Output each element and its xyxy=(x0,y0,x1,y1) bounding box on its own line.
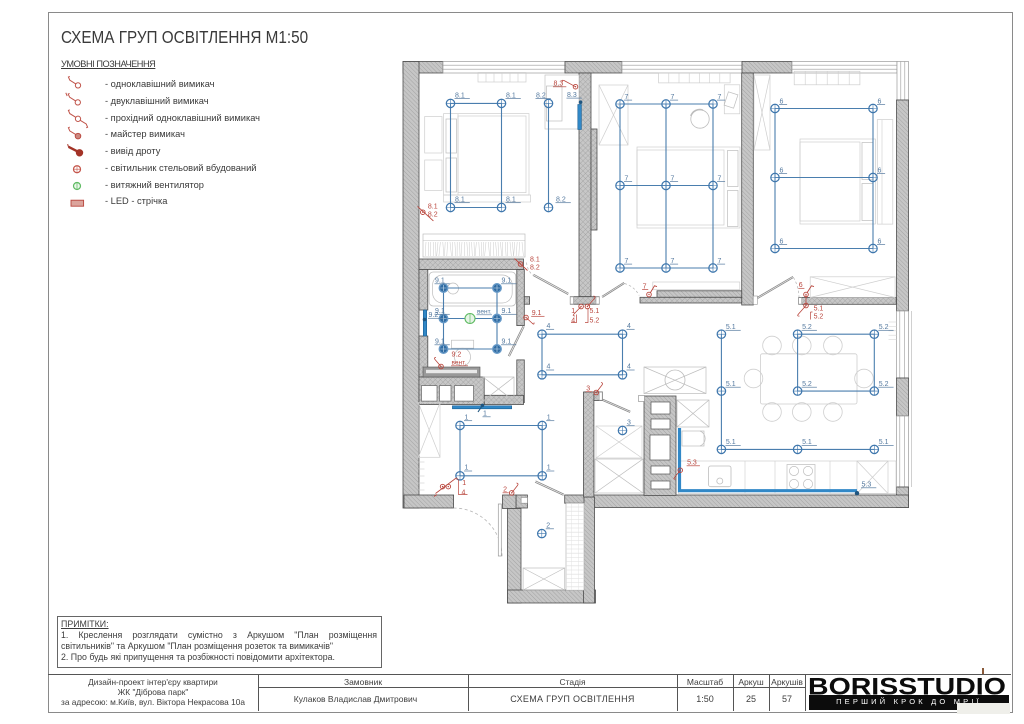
svg-text:8.3: 8.3 xyxy=(554,81,564,88)
svg-text:5.1: 5.1 xyxy=(590,308,600,315)
svg-text:8.1: 8.1 xyxy=(530,257,540,264)
svg-text:5.1: 5.1 xyxy=(814,306,824,313)
svg-text:4: 4 xyxy=(571,318,575,325)
svg-text:5.2: 5.2 xyxy=(590,318,600,325)
svg-text:8.1: 8.1 xyxy=(428,204,438,211)
svg-text:8.2: 8.2 xyxy=(530,265,540,272)
svg-text:1: 1 xyxy=(571,308,575,315)
svg-text:5.2: 5.2 xyxy=(814,314,824,321)
svg-text:4: 4 xyxy=(462,490,466,497)
svg-text:8.2: 8.2 xyxy=(428,212,438,219)
svg-text:1: 1 xyxy=(462,480,466,487)
svg-text:вент.: вент. xyxy=(477,309,492,316)
svg-text:9.2: 9.2 xyxy=(452,352,462,359)
